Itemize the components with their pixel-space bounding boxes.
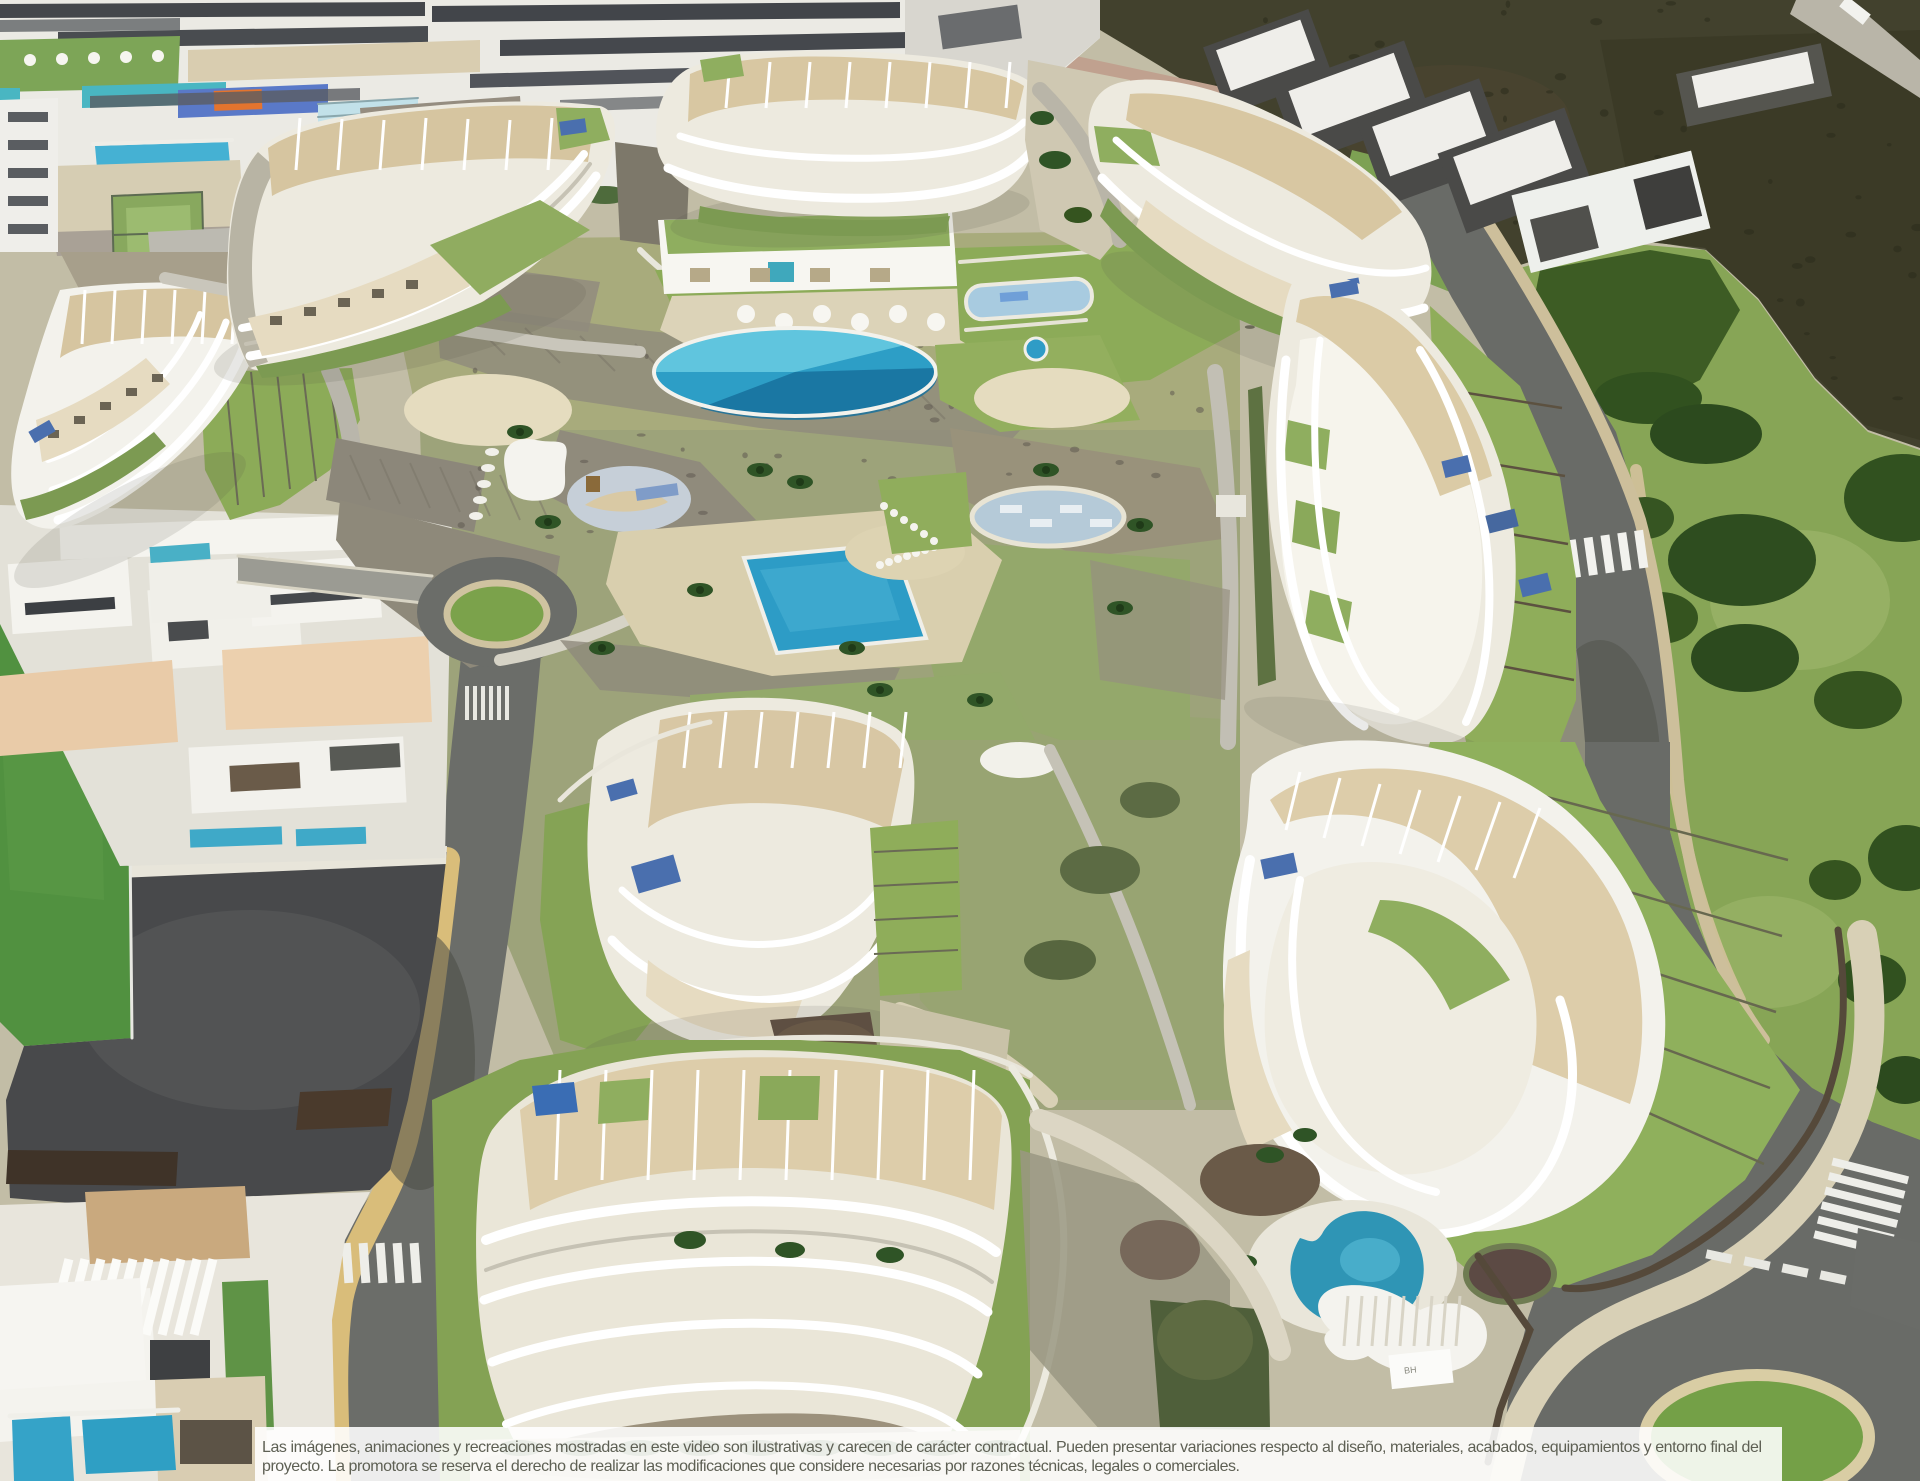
svg-text:BH: BH [1404, 1364, 1417, 1375]
svg-text:Las imágenes, animaciones y re: Las imágenes, animaciones y recreaciones… [262, 1439, 1762, 1456]
svg-text:proyecto. La promotora se rese: proyecto. La promotora se reserva el der… [262, 1458, 1240, 1475]
